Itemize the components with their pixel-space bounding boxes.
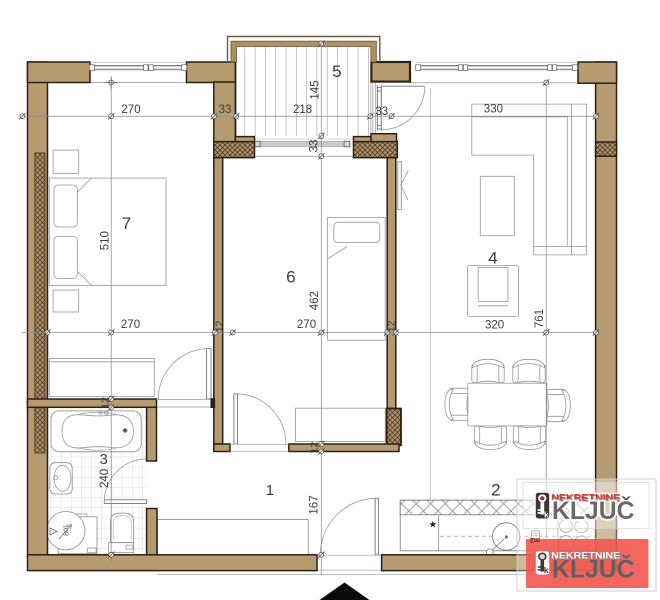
svg-text:k: k [544,510,549,520]
svg-text:270: 270 [121,319,140,331]
svg-text:4: 4 [488,249,497,268]
svg-text:145: 145 [309,80,321,99]
svg-text:1: 1 [266,482,274,499]
svg-text:k: k [544,565,549,575]
svg-text:510: 510 [99,231,111,250]
svg-text:167: 167 [309,495,321,514]
svg-text:12: 12 [308,442,320,454]
svg-text:5: 5 [332,62,341,81]
svg-text:80l: 80l [62,526,71,536]
svg-text:KLJUČ: KLJUČ [552,553,635,583]
svg-text:462: 462 [309,291,321,310]
svg-text:270: 270 [297,319,316,331]
svg-text:★: ★ [429,519,438,530]
svg-text:12: 12 [100,397,112,409]
svg-text:12: 12 [386,320,398,332]
svg-text:33: 33 [309,140,321,153]
svg-text:12: 12 [214,320,226,332]
svg-text:218: 218 [293,104,312,116]
svg-text:240: 240 [99,469,111,488]
svg-text:33: 33 [219,104,232,116]
svg-text:270: 270 [121,104,140,116]
svg-text:KLJUČ: KLJUČ [552,495,635,525]
svg-text:320: 320 [485,320,504,332]
svg-text:33: 33 [375,106,388,118]
svg-text:m2: m2 [530,536,540,543]
svg-text:6: 6 [286,267,295,286]
svg-text:3: 3 [100,451,108,468]
svg-text:761: 761 [534,309,546,328]
svg-text:7: 7 [122,214,131,233]
svg-text:2: 2 [491,480,500,499]
svg-text:330: 330 [484,104,503,116]
